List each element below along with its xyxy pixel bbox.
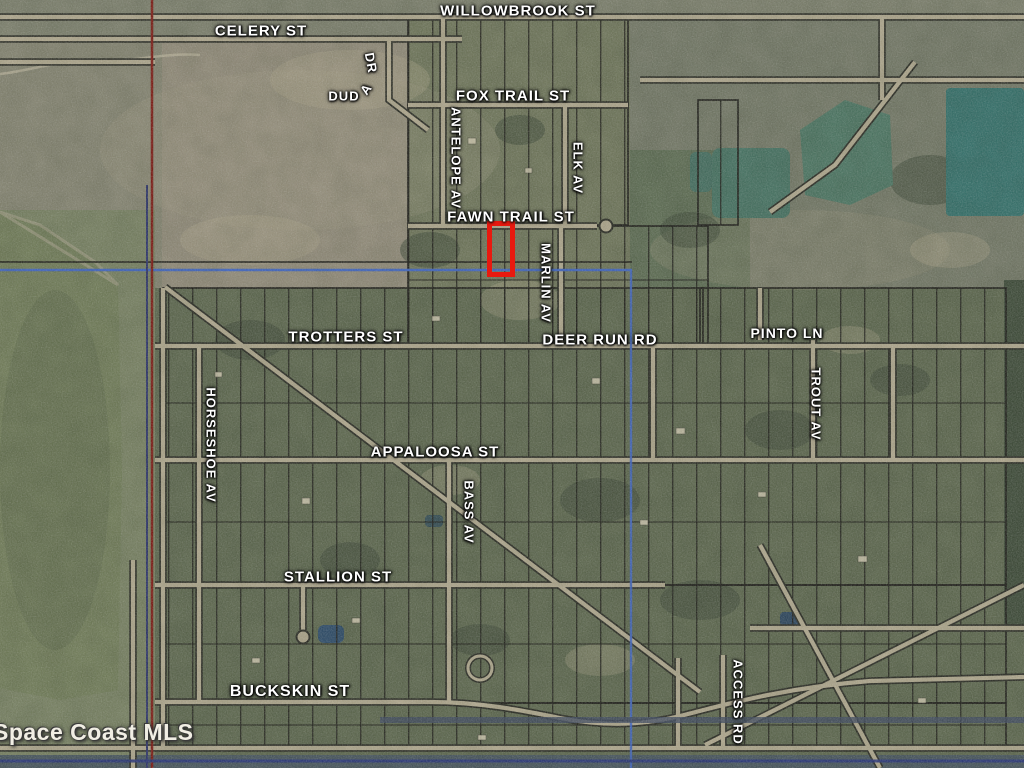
aerial-imagery [0, 0, 1024, 768]
aerial-parcel-map: WILLOWBROOK STCELERY STDUDADRFOX TRAIL S… [0, 0, 1024, 768]
mls-watermark: Space Coast MLS [0, 719, 194, 746]
highlighted-parcel [487, 221, 515, 277]
noise-grain [0, 0, 1024, 768]
